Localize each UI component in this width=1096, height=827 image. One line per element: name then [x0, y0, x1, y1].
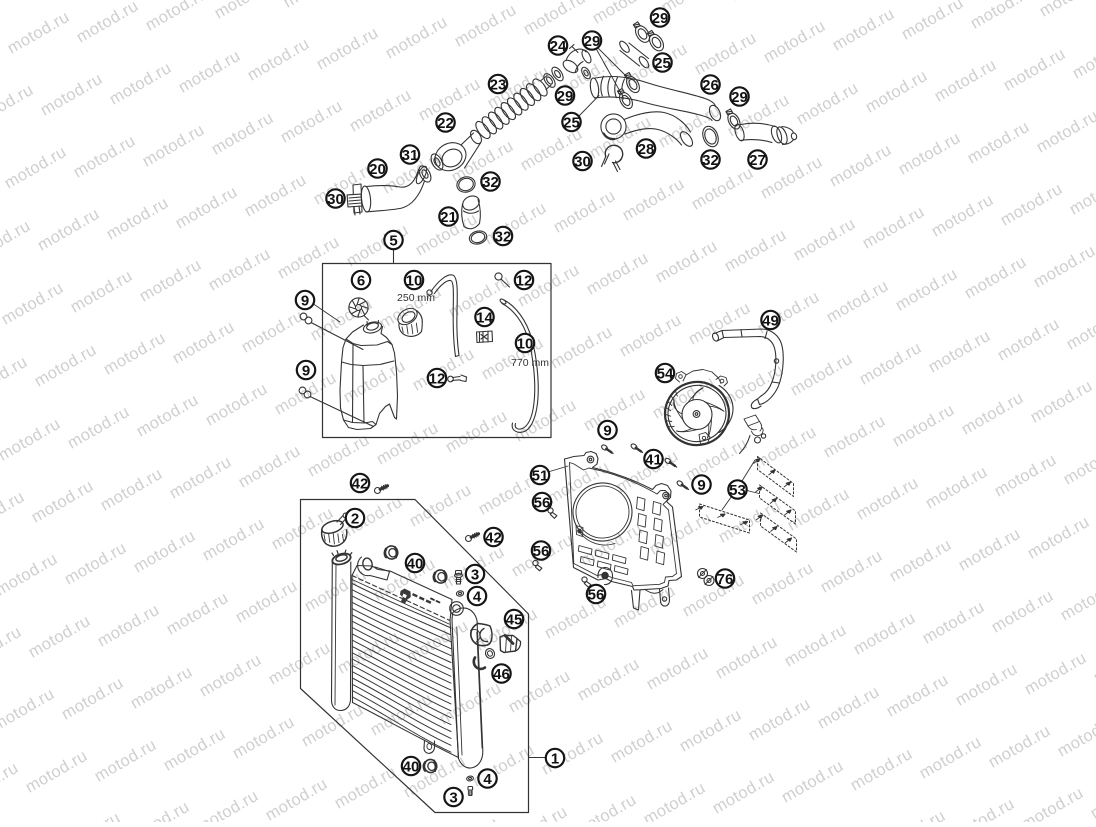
svg-text:53: 53 [729, 482, 746, 499]
svg-text:45: 45 [506, 611, 523, 628]
svg-text:24: 24 [550, 38, 567, 55]
svg-text:51: 51 [532, 467, 549, 484]
svg-text:27: 27 [749, 152, 766, 169]
svg-text:32: 32 [482, 174, 499, 191]
svg-text:4: 4 [473, 588, 482, 605]
svg-text:30: 30 [574, 153, 591, 170]
svg-text:31: 31 [402, 147, 419, 164]
svg-text:30: 30 [327, 191, 344, 208]
svg-text:14: 14 [476, 309, 493, 326]
svg-text:3: 3 [471, 566, 479, 583]
svg-text:12: 12 [429, 370, 446, 387]
svg-text:29: 29 [557, 88, 574, 105]
svg-text:3: 3 [449, 789, 457, 806]
svg-text:56: 56 [533, 543, 550, 560]
svg-text:10: 10 [406, 272, 423, 289]
svg-text:42: 42 [352, 475, 369, 492]
svg-text:25: 25 [654, 55, 671, 72]
svg-text:56: 56 [534, 494, 551, 511]
svg-text:56: 56 [588, 586, 605, 603]
svg-text:9: 9 [301, 292, 309, 309]
svg-text:76: 76 [717, 571, 734, 588]
svg-text:2: 2 [351, 510, 359, 527]
svg-text:6: 6 [357, 272, 365, 289]
svg-text:49: 49 [762, 312, 779, 329]
svg-text:32: 32 [702, 152, 719, 169]
svg-text:40: 40 [403, 758, 420, 775]
svg-text:46: 46 [493, 666, 510, 683]
svg-text:9: 9 [302, 362, 310, 379]
svg-text:25: 25 [563, 114, 580, 131]
svg-text:9: 9 [603, 422, 611, 439]
svg-text:41: 41 [645, 451, 662, 468]
svg-text:22: 22 [437, 115, 454, 132]
svg-text:29: 29 [584, 33, 601, 50]
svg-text:4: 4 [483, 771, 492, 788]
svg-text:9: 9 [697, 477, 705, 494]
svg-text:250 mm: 250 mm [397, 292, 435, 304]
svg-text:40: 40 [407, 555, 424, 572]
svg-text:29: 29 [731, 89, 748, 106]
svg-text:23: 23 [490, 76, 507, 93]
svg-text:20: 20 [369, 161, 386, 178]
svg-text:42: 42 [485, 529, 502, 546]
svg-text:54: 54 [657, 365, 674, 382]
svg-text:770 mm: 770 mm [511, 357, 549, 369]
svg-text:1: 1 [551, 750, 559, 767]
svg-text:32: 32 [495, 228, 512, 245]
svg-text:10: 10 [517, 335, 534, 352]
svg-text:5: 5 [389, 232, 397, 249]
svg-text:28: 28 [638, 141, 655, 158]
svg-text:21: 21 [440, 209, 457, 226]
svg-text:29: 29 [652, 10, 669, 27]
svg-text:26: 26 [702, 77, 719, 94]
svg-text:12: 12 [516, 272, 533, 289]
